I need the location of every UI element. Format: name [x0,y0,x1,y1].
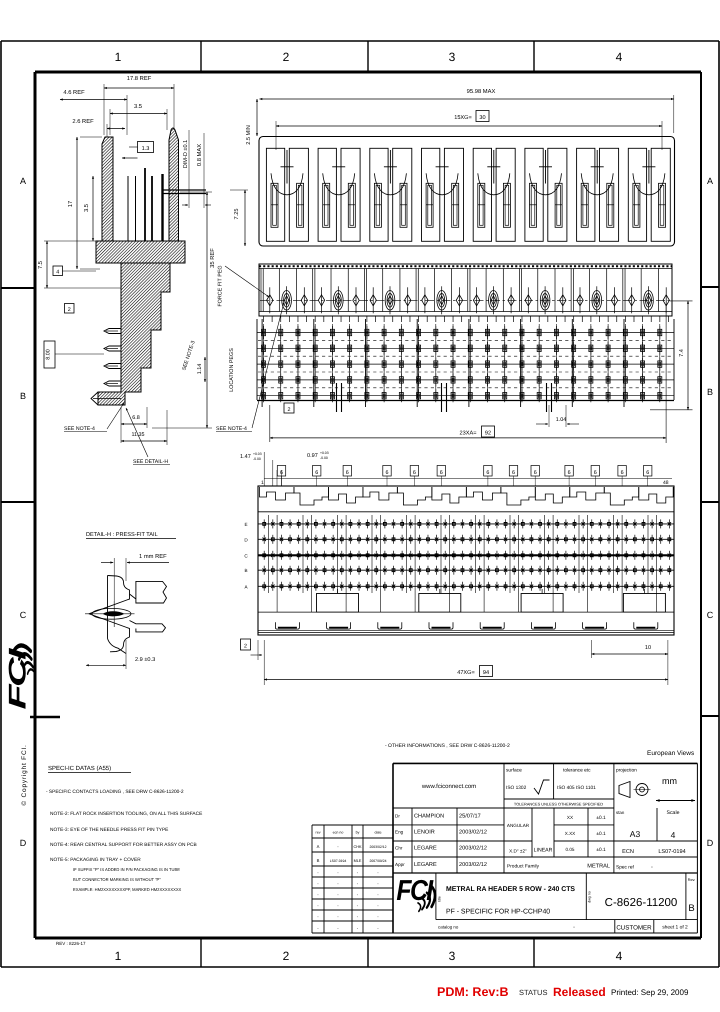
svg-text:Product Family: Product Family [507,864,540,870]
svg-text:ISO 1302: ISO 1302 [506,785,527,791]
svg-text:D: D [20,838,27,848]
svg-text:1.3: 1.3 [142,146,150,152]
svg-text:1: 1 [115,50,122,64]
svg-text:2003/02/12: 2003/02/12 [459,861,487,868]
svg-text:ISO 405 ISO 1101: ISO 405 ISO 1101 [557,785,596,791]
svg-text:European Views: European Views [647,750,695,757]
svg-text:B: B [20,391,26,401]
svg-text:D: D [707,838,714,848]
svg-text:IF SUFFIX "P" IS ADDED IN P/N: IF SUFFIX "P" IS ADDED IN P/N PACKAGING … [73,867,180,872]
svg-text:tolerance etc: tolerance etc [563,768,591,774]
svg-text:X.XX: X.XX [565,831,575,836]
svg-text:LS07-0194: LS07-0194 [658,849,685,855]
svg-text:30: 30 [479,115,485,121]
svg-text:0.8 MAX: 0.8 MAX [196,144,203,166]
svg-text:2: 2 [68,307,71,313]
svg-text:LOCATION PEGS: LOCATION PEGS [229,348,235,392]
svg-text:1.04: 1.04 [556,417,567,423]
svg-text:FORCE FIT PEG: FORCE FIT PEG [218,265,224,306]
svg-text:DIM-D ±0.1: DIM-D ±0.1 [183,140,189,169]
svg-text:±0.1: ±0.1 [596,831,606,837]
svg-text:2003/02/12: 2003/02/12 [370,845,387,849]
svg-text:PF - SPECIFIC FOR HP-CCHP40: PF - SPECIFIC FOR HP-CCHP40 [446,909,550,916]
svg-text:35 REF: 35 REF [209,248,216,268]
svg-text:SEE NOTE-4: SEE NOTE-4 [216,426,247,432]
svg-text:2003/02/12: 2003/02/12 [459,845,487,852]
svg-text:LS07-0194: LS07-0194 [330,859,347,863]
svg-text:7.25: 7.25 [234,209,240,220]
svg-text:REV : 8226-17: REV : 8226-17 [56,941,86,946]
svg-text:3.5: 3.5 [134,103,142,110]
svg-text:CHK: CHK [353,845,361,849]
svg-text:4: 4 [56,270,59,276]
svg-text:±0.1: ±0.1 [596,847,606,853]
svg-text:6: 6 [280,470,283,476]
svg-text:6: 6 [512,470,515,476]
svg-text:2: 2 [288,407,291,413]
svg-text:48: 48 [663,480,669,486]
svg-text:by: by [356,831,360,835]
svg-text:4: 4 [616,50,623,64]
svg-text:NOTE-2: FLAT ROCK INSERTION TO: NOTE-2: FLAT ROCK INSERTION TOOLING, ON … [50,811,202,817]
svg-text:MLE: MLE [354,859,362,863]
svg-text:23XA=: 23XA= [460,431,477,437]
svg-text:47XG=: 47XG= [457,670,475,676]
svg-text:rev: rev [316,831,321,835]
svg-text:6: 6 [440,470,443,476]
svg-text:NOTE-4: REAR CENTRAL SUPPORT F: NOTE-4: REAR CENTRAL SUPPORT FOR BETTER … [50,842,197,848]
svg-text:-0.00: -0.00 [253,457,261,461]
svg-text:Spec ref: Spec ref [616,865,635,871]
svg-text:NOTE-5: PACKAGING IN TRAY + CO: NOTE-5: PACKAGING IN TRAY + COVER [50,857,141,863]
svg-text:XX: XX [567,815,573,820]
svg-text:3: 3 [449,50,456,64]
svg-text:C-8626-11200: C-8626-11200 [605,897,678,909]
svg-text:- SPECIFIC CONTACTS LOADING ,: - SPECIFIC CONTACTS LOADING , SEE DRW C-… [46,789,184,795]
svg-text:17: 17 [68,201,74,207]
svg-text:±0.1: ±0.1 [596,815,606,821]
svg-text:1 mm REF: 1 mm REF [139,554,167,560]
svg-text:1: 1 [115,949,122,963]
svg-text:6: 6 [594,470,597,476]
svg-text:92: 92 [485,431,491,437]
svg-text:C: C [20,610,27,620]
svg-text:A: A [20,176,26,186]
svg-text:Eng: Eng [395,830,404,835]
svg-text:TOLERANCES UNLESS OTHERWISE SP: TOLERANCES UNLESS OTHERWISE SPECIFIED [514,801,603,806]
svg-text:SPECI-IC DATAS (A55): SPECI-IC DATAS (A55) [48,765,111,772]
svg-text:2003/02/12: 2003/02/12 [459,829,487,836]
svg-text:3: 3 [449,949,456,963]
svg-text:0.97: 0.97 [307,453,318,459]
svg-text:BUT CONNECTOR MARKING IS WITHO: BUT CONNECTOR MARKING IS WITHOUT "P" [73,877,161,882]
svg-text:7.4: 7.4 [679,349,685,357]
svg-text:6: 6 [534,470,537,476]
svg-text:DETAIL-H : PRESS-FIT TAIL: DETAIL-H : PRESS-FIT TAIL [86,532,158,538]
svg-text:Printed: Sep 29, 2009: Printed: Sep 29, 2009 [611,988,689,997]
svg-text:date: date [375,831,382,835]
svg-text:10: 10 [645,645,651,651]
svg-text:-: - [651,865,653,871]
svg-text:LENOIR: LENOIR [414,830,435,836]
svg-text:2: 2 [283,949,290,963]
svg-text:B: B [244,568,247,573]
svg-text:Released: Released [553,985,606,999]
svg-text:- OTHER INFORMATIONS , SEE DRW: - OTHER INFORMATIONS , SEE DRW C-8626-11… [385,743,510,749]
svg-text:3.5: 3.5 [83,204,90,212]
svg-text:sheet 1 of 2: sheet 1 of 2 [662,925,688,931]
svg-text:B: B [317,858,320,863]
svg-text:6: 6 [568,470,571,476]
svg-text:+0.03: +0.03 [320,451,329,455]
svg-text:ecn no: ecn no [333,831,344,835]
svg-text:-0.00: -0.00 [320,456,328,460]
svg-text:catalog no: catalog no [438,925,459,930]
svg-text:mm: mm [662,776,677,786]
svg-text:6: 6 [346,470,349,476]
svg-text:METRAL RA HEADER 5 ROW - 240 C: METRAL RA HEADER 5 ROW - 240 CTS [446,886,575,893]
svg-text:C: C [707,610,714,620]
svg-text:B: B [688,903,694,914]
svg-text:25/07/17: 25/07/17 [459,813,481,820]
svg-text:title: title [438,896,442,902]
svg-text:A: A [317,844,320,849]
svg-text:4: 4 [616,949,623,963]
svg-text:surface: surface [506,768,522,774]
svg-text:94: 94 [483,670,489,676]
svg-text:© Copyright FCI.: © Copyright FCI. [21,744,28,805]
svg-text:A: A [707,176,713,186]
svg-text:PDM: Rev:B: PDM: Rev:B [437,985,509,999]
svg-text:LINEAR: LINEAR [534,848,553,854]
svg-text:A3: A3 [630,829,641,839]
svg-text:6.8: 6.8 [132,415,140,421]
svg-text:ANGULAR: ANGULAR [507,823,530,828]
svg-text:6: 6 [486,470,489,476]
svg-text:4: 4 [671,830,676,840]
svg-text:CUSTOMER: CUSTOMER [616,925,652,932]
svg-text:1: 1 [261,480,264,486]
svg-text:6: 6 [646,470,649,476]
svg-text:1.47: 1.47 [240,454,251,460]
svg-text:STATUS: STATUS [519,988,547,997]
svg-text:4.6 REF: 4.6 REF [63,89,85,96]
svg-text:ECN: ECN [622,849,634,855]
svg-text:Appr: Appr [395,862,405,867]
svg-text:-: - [573,925,575,931]
svg-text:+0.03: +0.03 [253,452,262,456]
svg-text:Scale: Scale [667,810,680,816]
svg-text:E: E [244,522,247,527]
svg-text:LEGARE: LEGARE [414,862,437,868]
svg-text:17.8 REF: 17.8 REF [127,75,152,82]
svg-text:0.05: 0.05 [566,847,575,852]
svg-text:6: 6 [315,470,318,476]
svg-text:projection: projection [616,768,637,774]
svg-text:8.00: 8.00 [46,349,52,360]
svg-text:6: 6 [621,470,624,476]
svg-text:95.98 MAX: 95.98 MAX [467,88,496,95]
svg-text:Rev.: Rev. [688,878,696,882]
svg-text:6: 6 [413,470,416,476]
svg-text:2007/09/24: 2007/09/24 [370,859,387,863]
svg-text:6: 6 [386,470,389,476]
svg-text:1.14: 1.14 [197,364,203,375]
svg-text:X.D° ±2°: X.D° ±2° [509,849,527,854]
svg-text:B: B [707,387,713,397]
svg-text:Dr: Dr [395,814,400,819]
svg-text:dwg no: dwg no [588,891,592,903]
svg-text:CHAMPION: CHAMPION [414,814,444,820]
svg-text:7.5: 7.5 [38,261,44,269]
svg-text:EXAMPLE: HM2XXXXXXXXPF, MARKED: EXAMPLE: HM2XXXXXXXXPF, MARKED HM2XXXXXX… [73,887,182,892]
svg-text:2.9 ±0.3: 2.9 ±0.3 [135,657,155,663]
svg-text:15XG=: 15XG= [454,115,472,121]
svg-text:2.6 REF: 2.6 REF [72,118,94,125]
svg-text:2: 2 [244,644,247,650]
svg-text:METRAL: METRAL [587,864,610,870]
svg-text:2.5 MIN: 2.5 MIN [246,125,252,145]
svg-text:LEGARE: LEGARE [414,846,437,852]
svg-text:stan: stan [616,810,625,815]
svg-text:2: 2 [283,50,290,64]
svg-text:Chr: Chr [395,846,403,851]
svg-text:www.fciconnect.com: www.fciconnect.com [421,783,476,790]
svg-text:NOTE-3: EYE OF THE NEEDLE PRES: NOTE-3: EYE OF THE NEEDLE PRESS FIT PIN … [50,827,168,833]
svg-text:SEE NOTE-4: SEE NOTE-4 [64,426,95,432]
svg-text:SEE DETAIL-H: SEE DETAIL-H [133,459,168,465]
